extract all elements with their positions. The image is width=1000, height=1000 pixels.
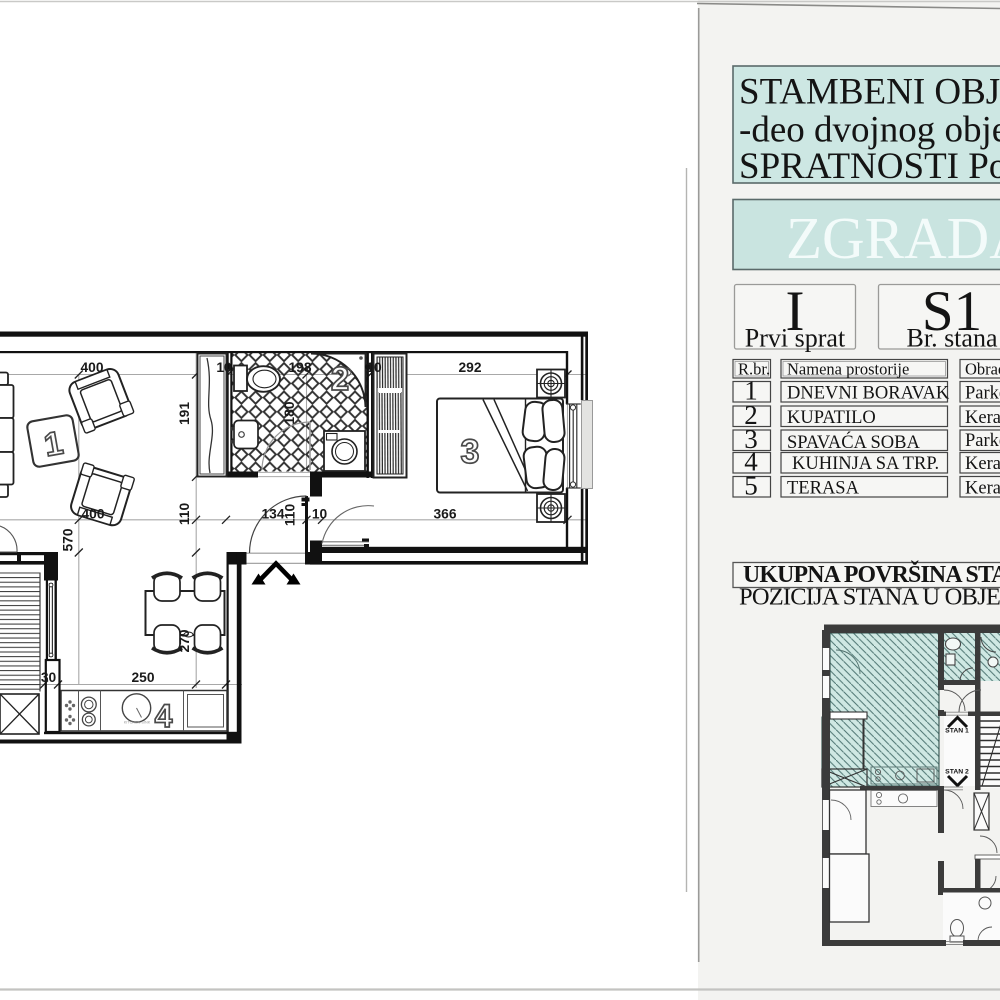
svg-text:ZGRADA: ZGRADA xyxy=(786,205,1000,271)
svg-text:KUPATILO: KUPATILO xyxy=(787,408,876,428)
svg-text:10: 10 xyxy=(366,360,382,375)
svg-text:366: 366 xyxy=(433,507,456,522)
svg-text:400: 400 xyxy=(81,507,104,522)
svg-text:Prvi sprat: Prvi sprat xyxy=(745,324,846,353)
svg-text:570: 570 xyxy=(61,528,76,551)
svg-text:KUHINJA SA TRP.: KUHINJA SA TRP. xyxy=(792,454,939,474)
svg-text:10: 10 xyxy=(312,507,328,522)
svg-text:110: 110 xyxy=(177,503,192,526)
svg-text:400: 400 xyxy=(80,360,103,375)
svg-text:SPRATNOSTI Po+P: SPRATNOSTI Po+P xyxy=(739,146,1000,187)
svg-text:4: 4 xyxy=(155,698,173,734)
svg-text:10: 10 xyxy=(216,360,232,375)
svg-text:292: 292 xyxy=(458,360,481,375)
svg-text:STAN 2: STAN 2 xyxy=(945,769,969,776)
svg-text:Keramika: Keramika xyxy=(965,454,1000,474)
svg-text:STAMBENI OBJEKAT: STAMBENI OBJEKAT xyxy=(739,72,1000,113)
svg-text:191: 191 xyxy=(177,402,192,425)
svg-text:180: 180 xyxy=(282,401,297,424)
svg-text:Br. stana: Br. stana xyxy=(907,324,998,353)
svg-text:POZICIJA STANA U OBJEKTU: POZICIJA STANA U OBJEKTU xyxy=(739,584,1000,611)
svg-text:Namena prostorije: Namena prostorije xyxy=(787,360,909,379)
svg-text:3: 3 xyxy=(461,433,480,471)
svg-text:2: 2 xyxy=(331,360,349,397)
svg-text:STAN 1: STAN 1 xyxy=(945,728,969,735)
svg-text:270: 270 xyxy=(177,629,192,652)
svg-text:-deo dvojnog objekta: -deo dvojnog objekta xyxy=(739,110,1000,151)
svg-text:TERASA: TERASA xyxy=(787,479,860,499)
svg-text:110: 110 xyxy=(283,504,298,527)
svg-text:Keramika: Keramika xyxy=(965,408,1000,428)
svg-text:Keramika: Keramika xyxy=(965,479,1000,499)
svg-text:SPAVAĆA SOBA: SPAVAĆA SOBA xyxy=(787,431,920,453)
svg-text:Obrada: Obrada xyxy=(965,360,1000,379)
svg-text:250: 250 xyxy=(131,670,154,685)
svg-text:198: 198 xyxy=(288,360,311,375)
svg-text:Parket: Parket xyxy=(965,384,1000,404)
svg-text:Parket: Parket xyxy=(965,431,1000,451)
svg-text:134: 134 xyxy=(261,507,284,522)
svg-text:DNEVNI BORAVAK: DNEVNI BORAVAK xyxy=(787,384,950,404)
svg-text:30: 30 xyxy=(41,670,57,685)
svg-text:5: 5 xyxy=(744,471,758,501)
svg-text:KITCHEN SINK: KITCHEN SINK xyxy=(124,721,151,725)
